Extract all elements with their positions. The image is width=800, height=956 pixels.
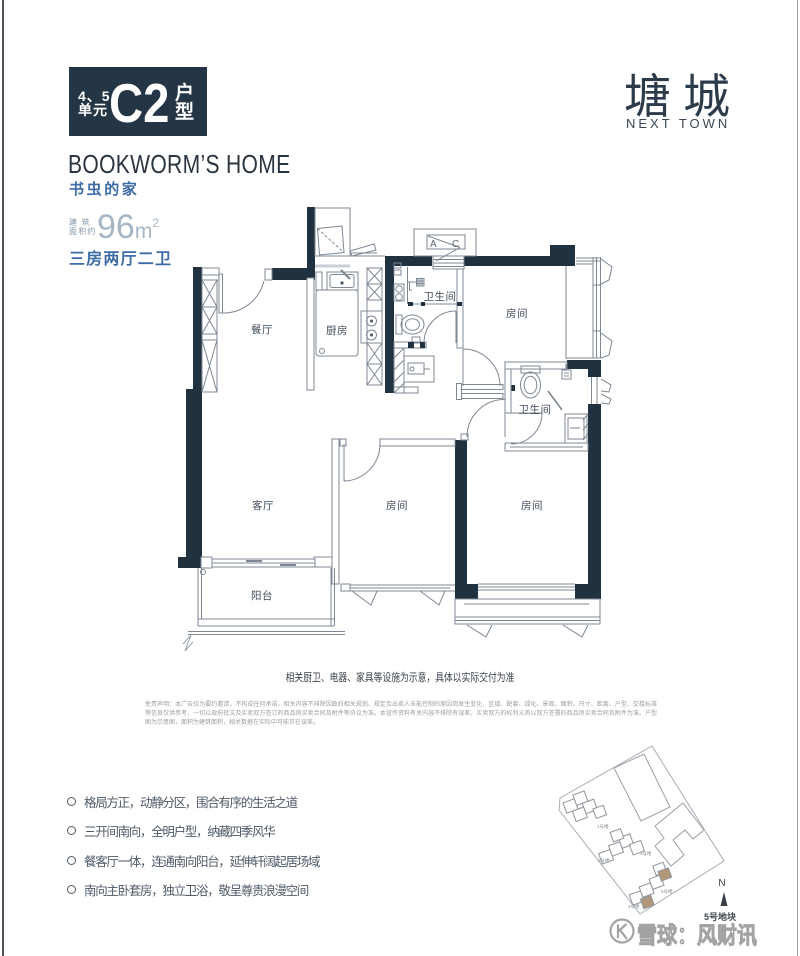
svg-text:C: C (452, 239, 459, 250)
svg-text:厨房: 厨房 (326, 324, 348, 337)
svg-text:1号楼: 1号楼 (597, 823, 609, 830)
svg-text:3号楼: 3号楼 (640, 850, 652, 857)
svg-text:A: A (430, 239, 437, 250)
svg-text:房间: 房间 (386, 499, 408, 512)
svg-text:阳台: 阳台 (251, 589, 273, 602)
svg-text:餐厅: 餐厅 (251, 323, 273, 336)
svg-text:卫生间: 卫生间 (424, 290, 457, 303)
svg-text:2号楼: 2号楼 (598, 857, 610, 864)
svg-text:房间: 房间 (521, 499, 543, 512)
svg-text:卫生间: 卫生间 (519, 403, 552, 416)
svg-text:4号楼: 4号楼 (628, 903, 640, 910)
svg-text:客厅: 客厅 (252, 499, 274, 512)
svg-text:5号楼: 5号楼 (661, 888, 673, 895)
svg-text:房间: 房间 (506, 307, 528, 320)
svg-text:N: N (718, 878, 725, 889)
